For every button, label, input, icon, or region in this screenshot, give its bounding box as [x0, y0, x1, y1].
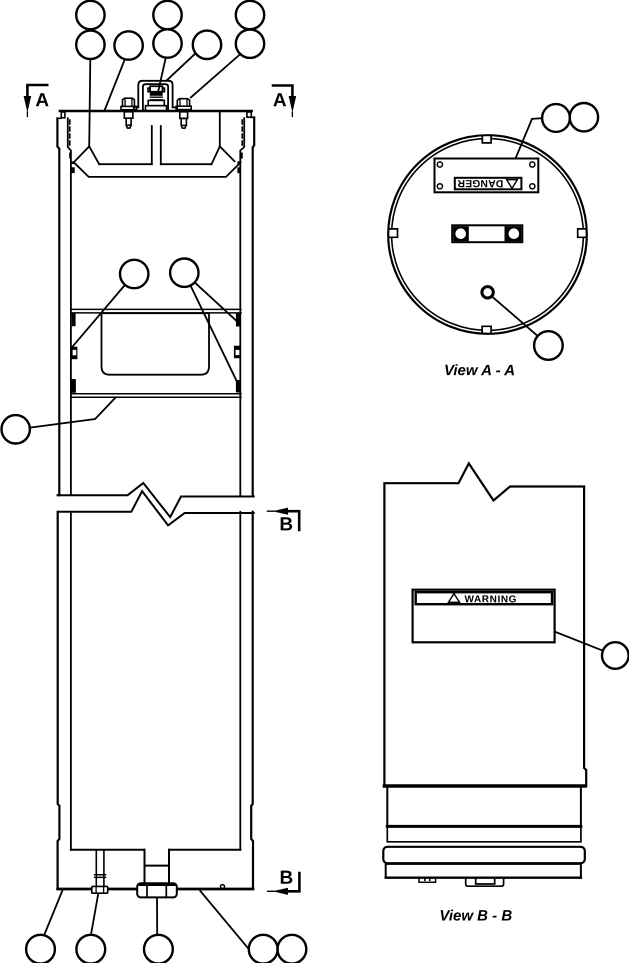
- svg-text:View B - B: View B - B: [439, 907, 512, 924]
- svg-text:B: B: [280, 868, 294, 889]
- svg-text:DANGER: DANGER: [457, 177, 503, 188]
- svg-text:View A - A: View A - A: [444, 362, 515, 379]
- svg-text:A: A: [273, 90, 287, 111]
- svg-text:WARNING: WARNING: [464, 594, 517, 605]
- svg-text:B: B: [279, 514, 293, 535]
- svg-text:A: A: [35, 90, 49, 111]
